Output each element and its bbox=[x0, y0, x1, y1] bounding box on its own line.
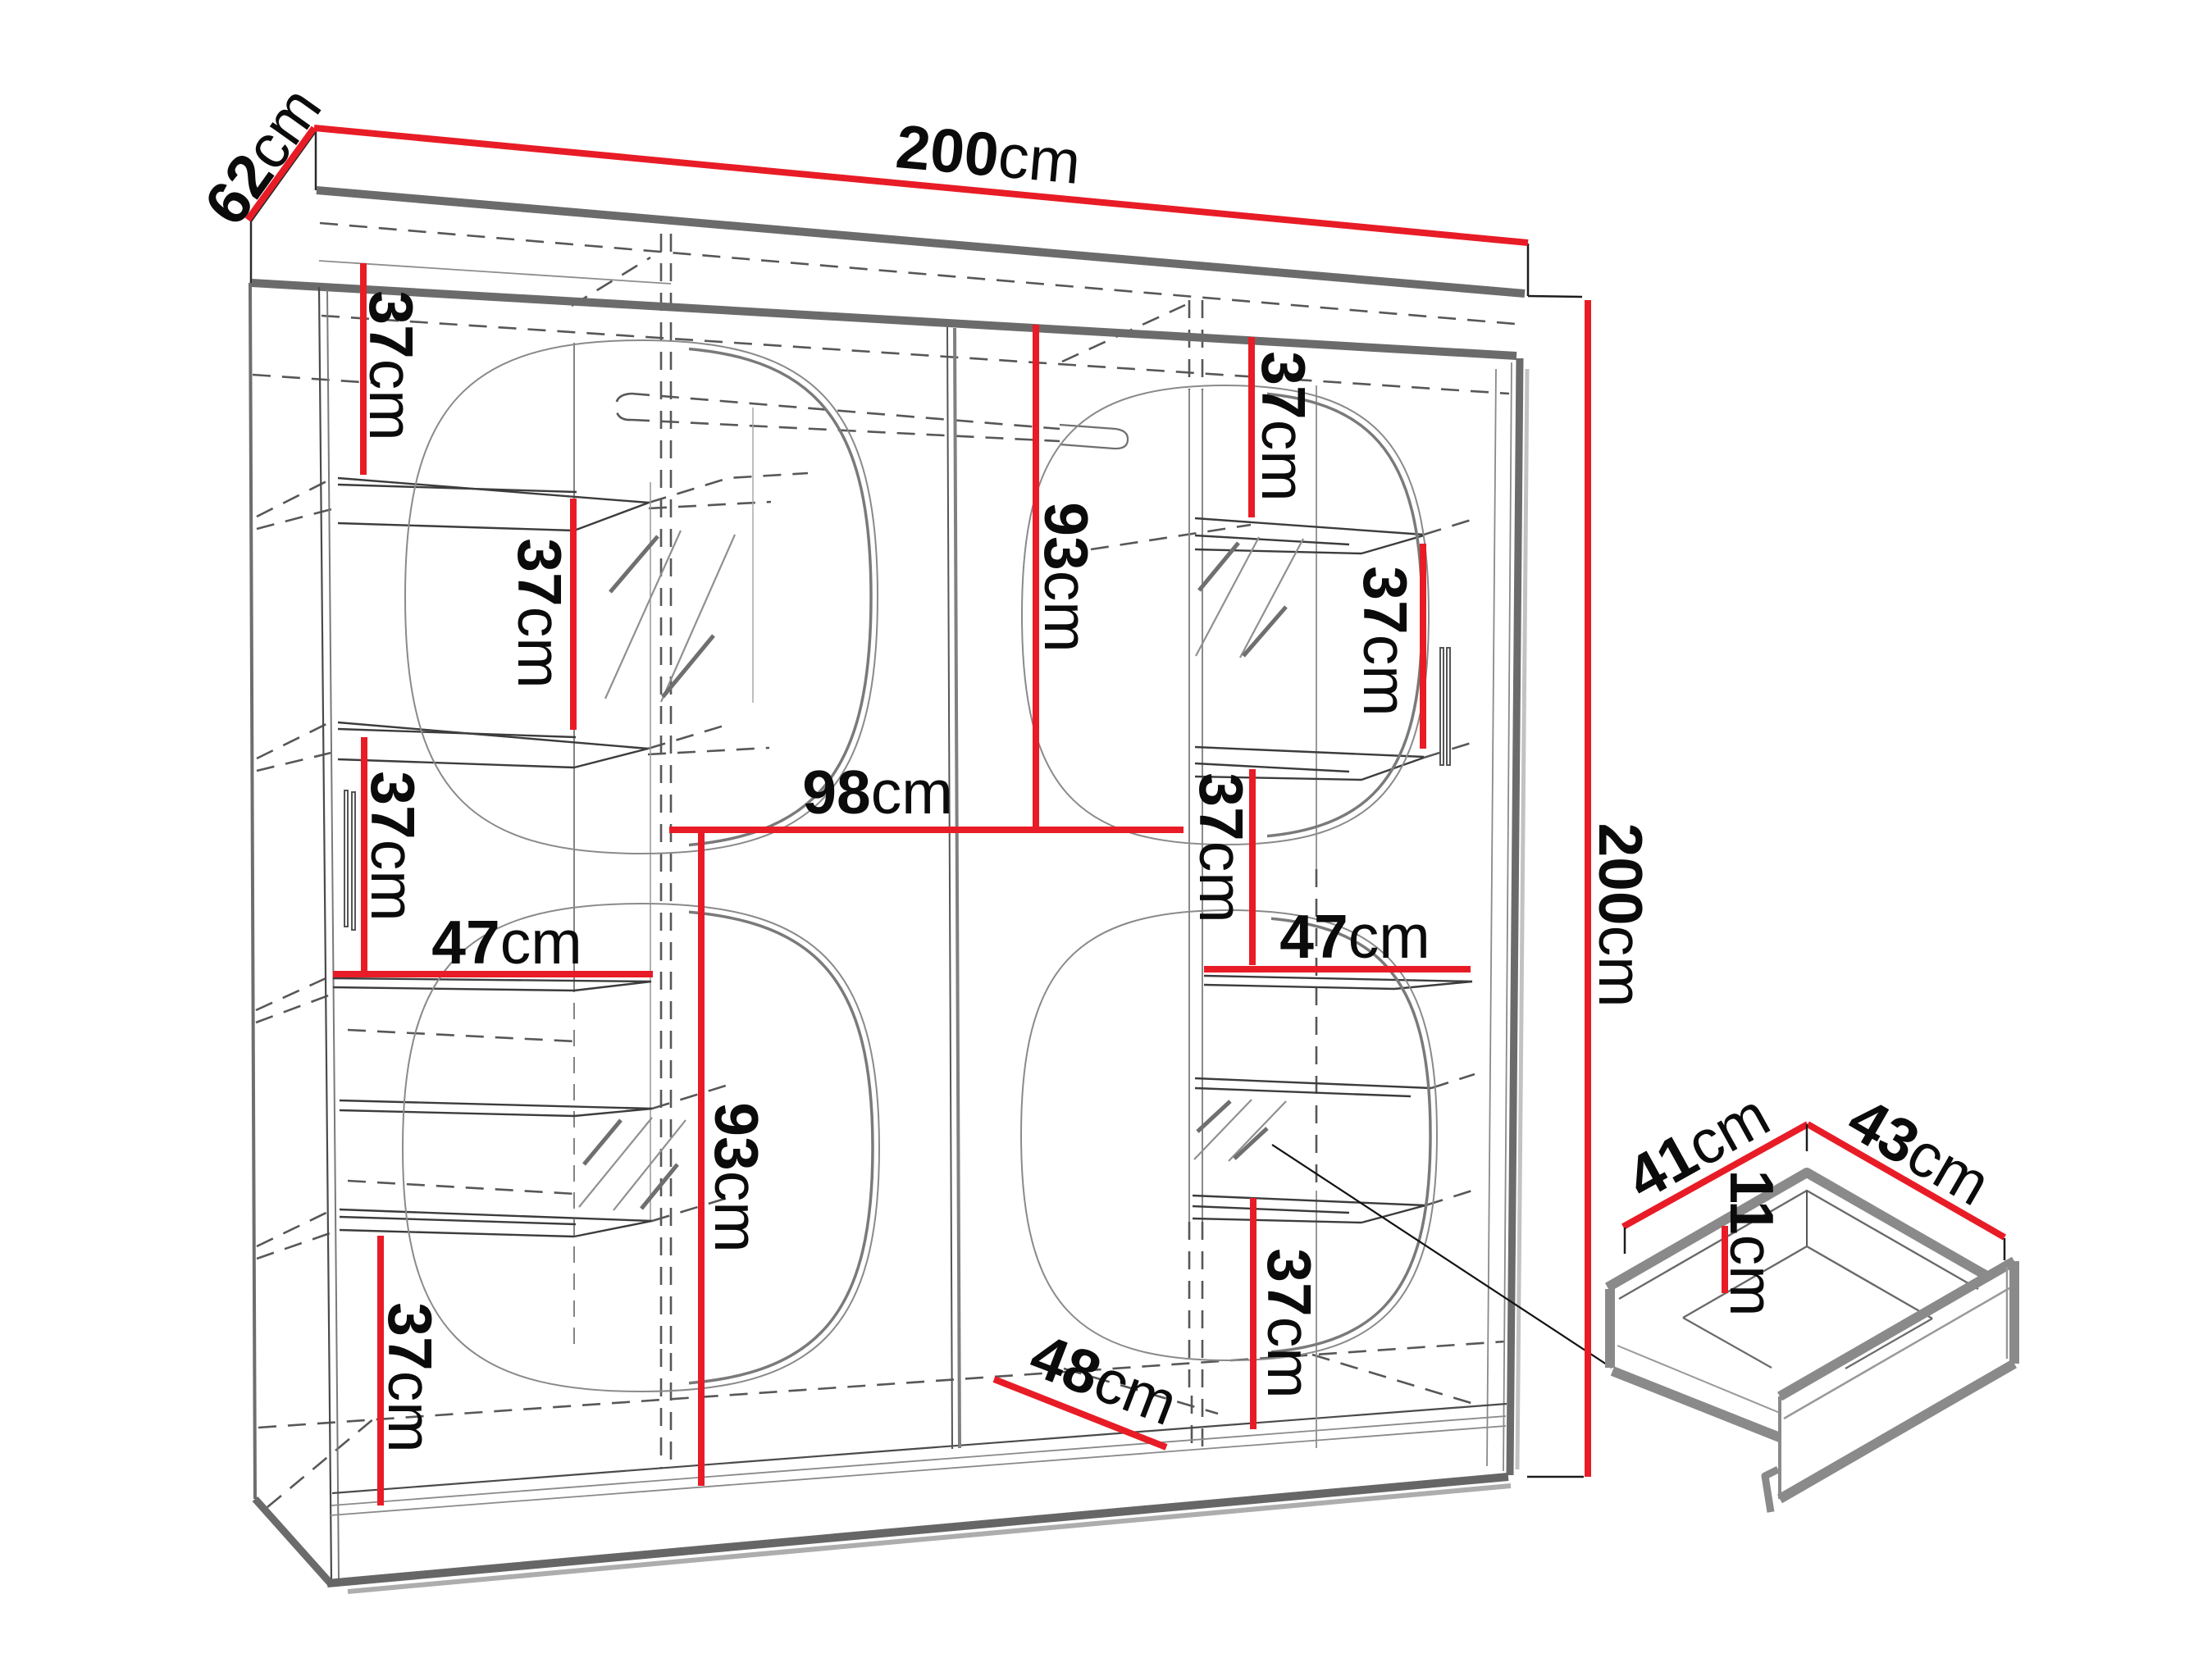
svg-text:98cm: 98cm bbox=[802, 758, 952, 827]
svg-text:37cm: 37cm bbox=[358, 771, 427, 921]
svg-text:93cm: 93cm bbox=[1032, 502, 1101, 652]
svg-text:93cm: 93cm bbox=[702, 1102, 771, 1252]
svg-text:47cm: 47cm bbox=[1279, 902, 1430, 971]
svg-text:200cm: 200cm bbox=[1586, 822, 1655, 1007]
svg-text:37cm: 37cm bbox=[505, 538, 574, 688]
svg-text:47cm: 47cm bbox=[431, 908, 582, 977]
svg-text:37cm: 37cm bbox=[357, 290, 426, 440]
svg-text:11cm: 11cm bbox=[1717, 1169, 1786, 1316]
svg-text:37cm: 37cm bbox=[1249, 351, 1318, 501]
svg-text:37cm: 37cm bbox=[1351, 566, 1420, 716]
svg-text:37cm: 37cm bbox=[376, 1302, 445, 1452]
svg-text:37cm: 37cm bbox=[1187, 772, 1256, 922]
svg-text:37cm: 37cm bbox=[1255, 1248, 1324, 1398]
